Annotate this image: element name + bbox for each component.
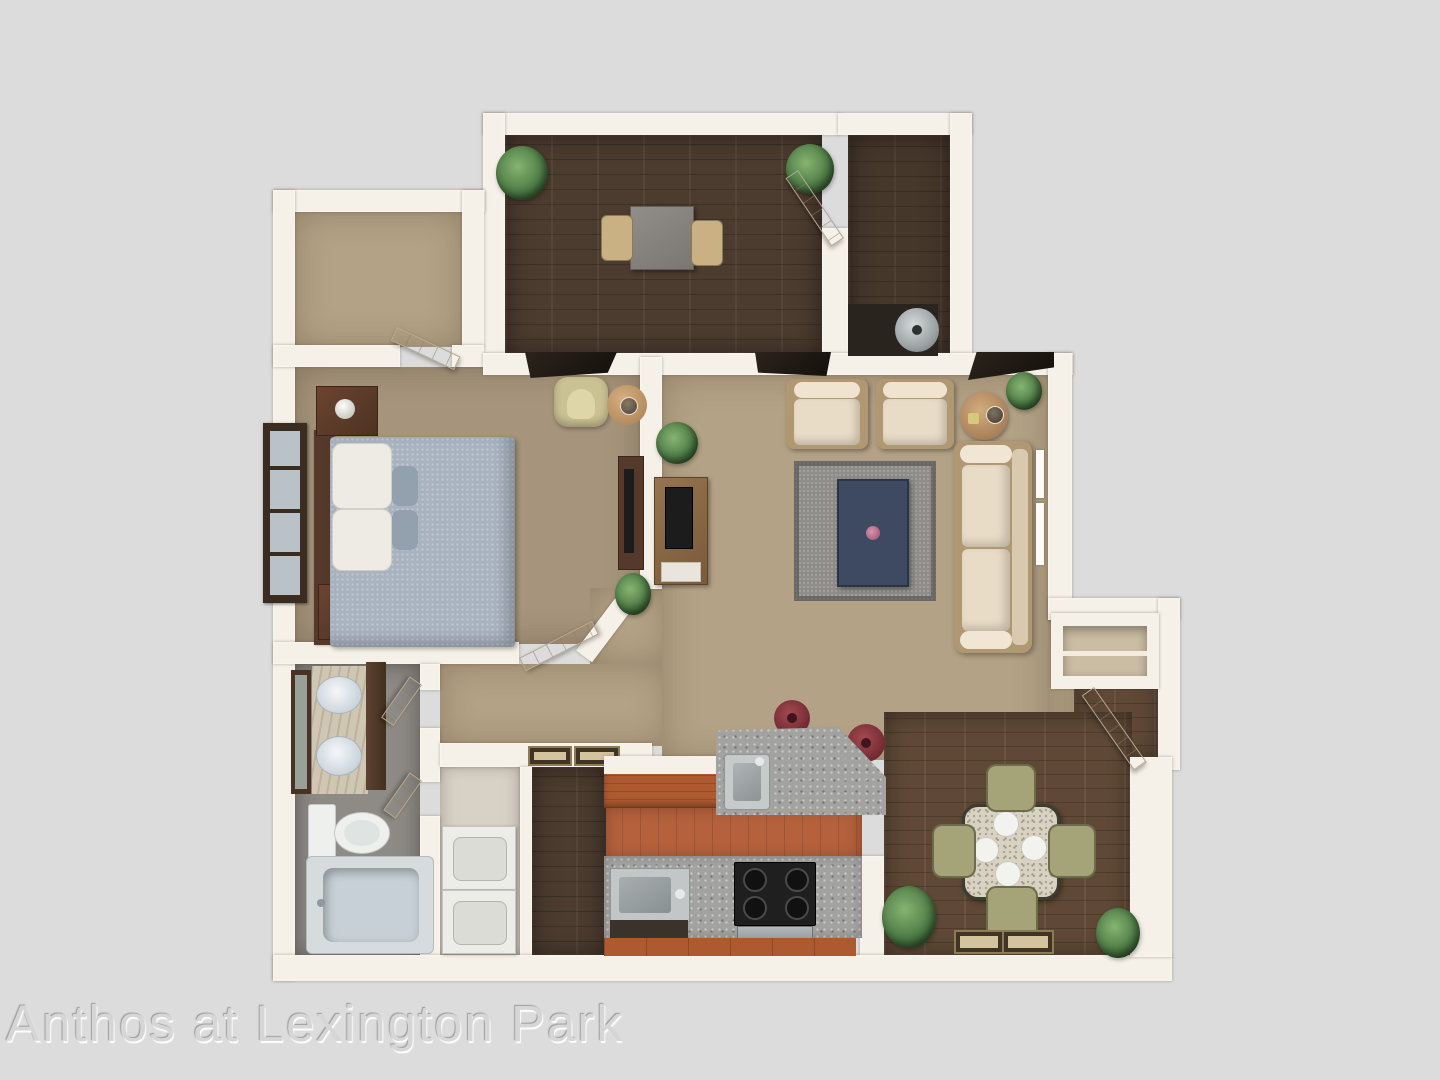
dryer-lid	[453, 901, 507, 945]
armchair-cushion	[883, 399, 947, 445]
flower-vase-icon	[866, 526, 880, 540]
washer-lid	[453, 837, 507, 881]
toilet-tank	[308, 804, 336, 862]
bedroom-tv	[624, 469, 634, 553]
floor-mat-2	[1002, 930, 1054, 954]
plate-icon	[973, 837, 999, 863]
bedroom-window	[263, 423, 307, 603]
dining-chair-top	[986, 764, 1036, 812]
stove-cooktop	[734, 862, 816, 926]
kitchen-plant-icon	[882, 886, 936, 948]
wall-bathroom-right-a	[420, 664, 440, 690]
wall-console-living-left	[755, 352, 831, 376]
living-side-table	[960, 392, 1008, 440]
wall-bottom-outer	[273, 955, 1172, 981]
armchair-cushion	[794, 399, 860, 445]
bedroom-armchair	[554, 377, 608, 427]
hallway-floor	[440, 664, 668, 746]
sink-basin	[619, 877, 671, 913]
floor-plan: Anthos at Lexington Park	[0, 0, 1440, 1080]
bedroom-armchair-cushion	[567, 389, 595, 419]
dining-chair-right	[1048, 824, 1096, 878]
entry-nook-shelf	[1063, 651, 1147, 656]
lamp-icon	[335, 399, 355, 419]
mirror-glass	[295, 675, 307, 789]
kitchen-base-cabinets	[604, 938, 856, 956]
wall-entry-right	[1158, 598, 1180, 770]
nightstand-top	[316, 386, 378, 436]
kitchen-sink	[610, 868, 690, 922]
living-media-console	[654, 477, 708, 585]
burner-icon	[743, 868, 767, 892]
den-chair-right	[691, 220, 723, 266]
dining-chair-left	[932, 824, 976, 878]
living-plant-icon	[1006, 372, 1042, 410]
armchair-back-pillow	[883, 382, 947, 398]
watermark-text: Anthos at Lexington Park	[6, 994, 624, 1053]
dining-plant-icon	[1096, 908, 1140, 958]
tub-drain-icon	[317, 899, 325, 907]
wall-kitchen-stub	[860, 856, 884, 957]
toilet-bowl	[334, 812, 390, 854]
stool-center	[787, 713, 797, 723]
wall-closet-top	[273, 190, 485, 212]
bedroom-plant-icon	[615, 573, 651, 615]
water-heater	[895, 308, 939, 352]
wall-laundry-divider	[520, 767, 532, 957]
den-chair-left	[601, 215, 633, 261]
faucet-icon	[755, 757, 764, 766]
pillow	[332, 443, 392, 509]
faucet-icon	[675, 889, 685, 899]
wall-den-left	[483, 113, 505, 359]
vanity-sink-2	[316, 736, 362, 776]
armchair-back-pillow	[794, 382, 860, 398]
table-book	[968, 413, 979, 424]
burner-icon	[785, 896, 809, 920]
coffee-table	[837, 479, 909, 587]
sofa-cushion	[962, 465, 1010, 547]
washer	[442, 826, 516, 890]
toilet-seat	[344, 820, 380, 846]
hall-threshold-1	[528, 746, 572, 766]
wall-den-utility-divider	[822, 228, 848, 357]
sofa	[954, 441, 1032, 653]
den-desk	[630, 206, 694, 270]
wall-closet-right	[462, 190, 484, 347]
sofa-back	[1012, 449, 1028, 645]
sink-basin	[733, 763, 761, 801]
living-tv	[665, 487, 693, 549]
burner-icon	[785, 868, 809, 892]
kitchen-upper-cabinets	[604, 774, 724, 808]
wall-living-right	[1048, 353, 1072, 620]
dryer	[442, 890, 516, 954]
wall-closet-bottom	[273, 345, 400, 367]
bed	[330, 437, 515, 647]
sofa-cushion	[962, 549, 1010, 631]
plate-icon	[1021, 835, 1047, 861]
wall-bathroom-right-b	[420, 728, 440, 782]
den-plant-icon	[496, 146, 548, 200]
wall-trim-2	[1036, 503, 1044, 565]
sofa-arm-pillow	[960, 445, 1012, 463]
armchair-2	[876, 379, 954, 449]
wall-trim-1	[1036, 450, 1044, 498]
bedroom-tv-console	[618, 456, 644, 570]
pantry-hall-floor	[530, 765, 606, 957]
water-heater-cap	[912, 325, 922, 335]
kitchen-halfwall-cap	[604, 756, 724, 774]
pillow	[332, 509, 392, 571]
wall-utility-right	[950, 113, 972, 358]
wall-den-top	[483, 113, 840, 135]
vanity-cabinet-edge	[366, 662, 386, 790]
floor-mat-1	[954, 930, 1004, 954]
plate-icon	[993, 811, 1019, 837]
bedroom-side-table	[607, 385, 647, 425]
armchair-1	[786, 379, 868, 449]
burner-icon	[743, 896, 767, 920]
bar-sink	[724, 754, 770, 810]
bedroom-window-panes	[270, 431, 300, 595]
plate-icon	[995, 861, 1021, 887]
console-papers	[661, 562, 701, 582]
bathroom-mirror	[291, 670, 311, 794]
accent-pillow	[392, 466, 418, 506]
vanity-sink-1	[316, 676, 362, 714]
accent-pillow	[392, 510, 418, 550]
table-lamp-icon	[620, 397, 638, 415]
stool-center	[861, 738, 871, 748]
bathtub	[306, 856, 434, 954]
sofa-arm-pillow	[960, 631, 1012, 649]
table-lamp-icon	[986, 406, 1004, 424]
entry-closet-nook	[1051, 613, 1159, 689]
walk-in-closet-floor	[295, 212, 462, 347]
living-plant-2-icon	[656, 422, 698, 464]
bathtub-basin	[323, 868, 419, 942]
